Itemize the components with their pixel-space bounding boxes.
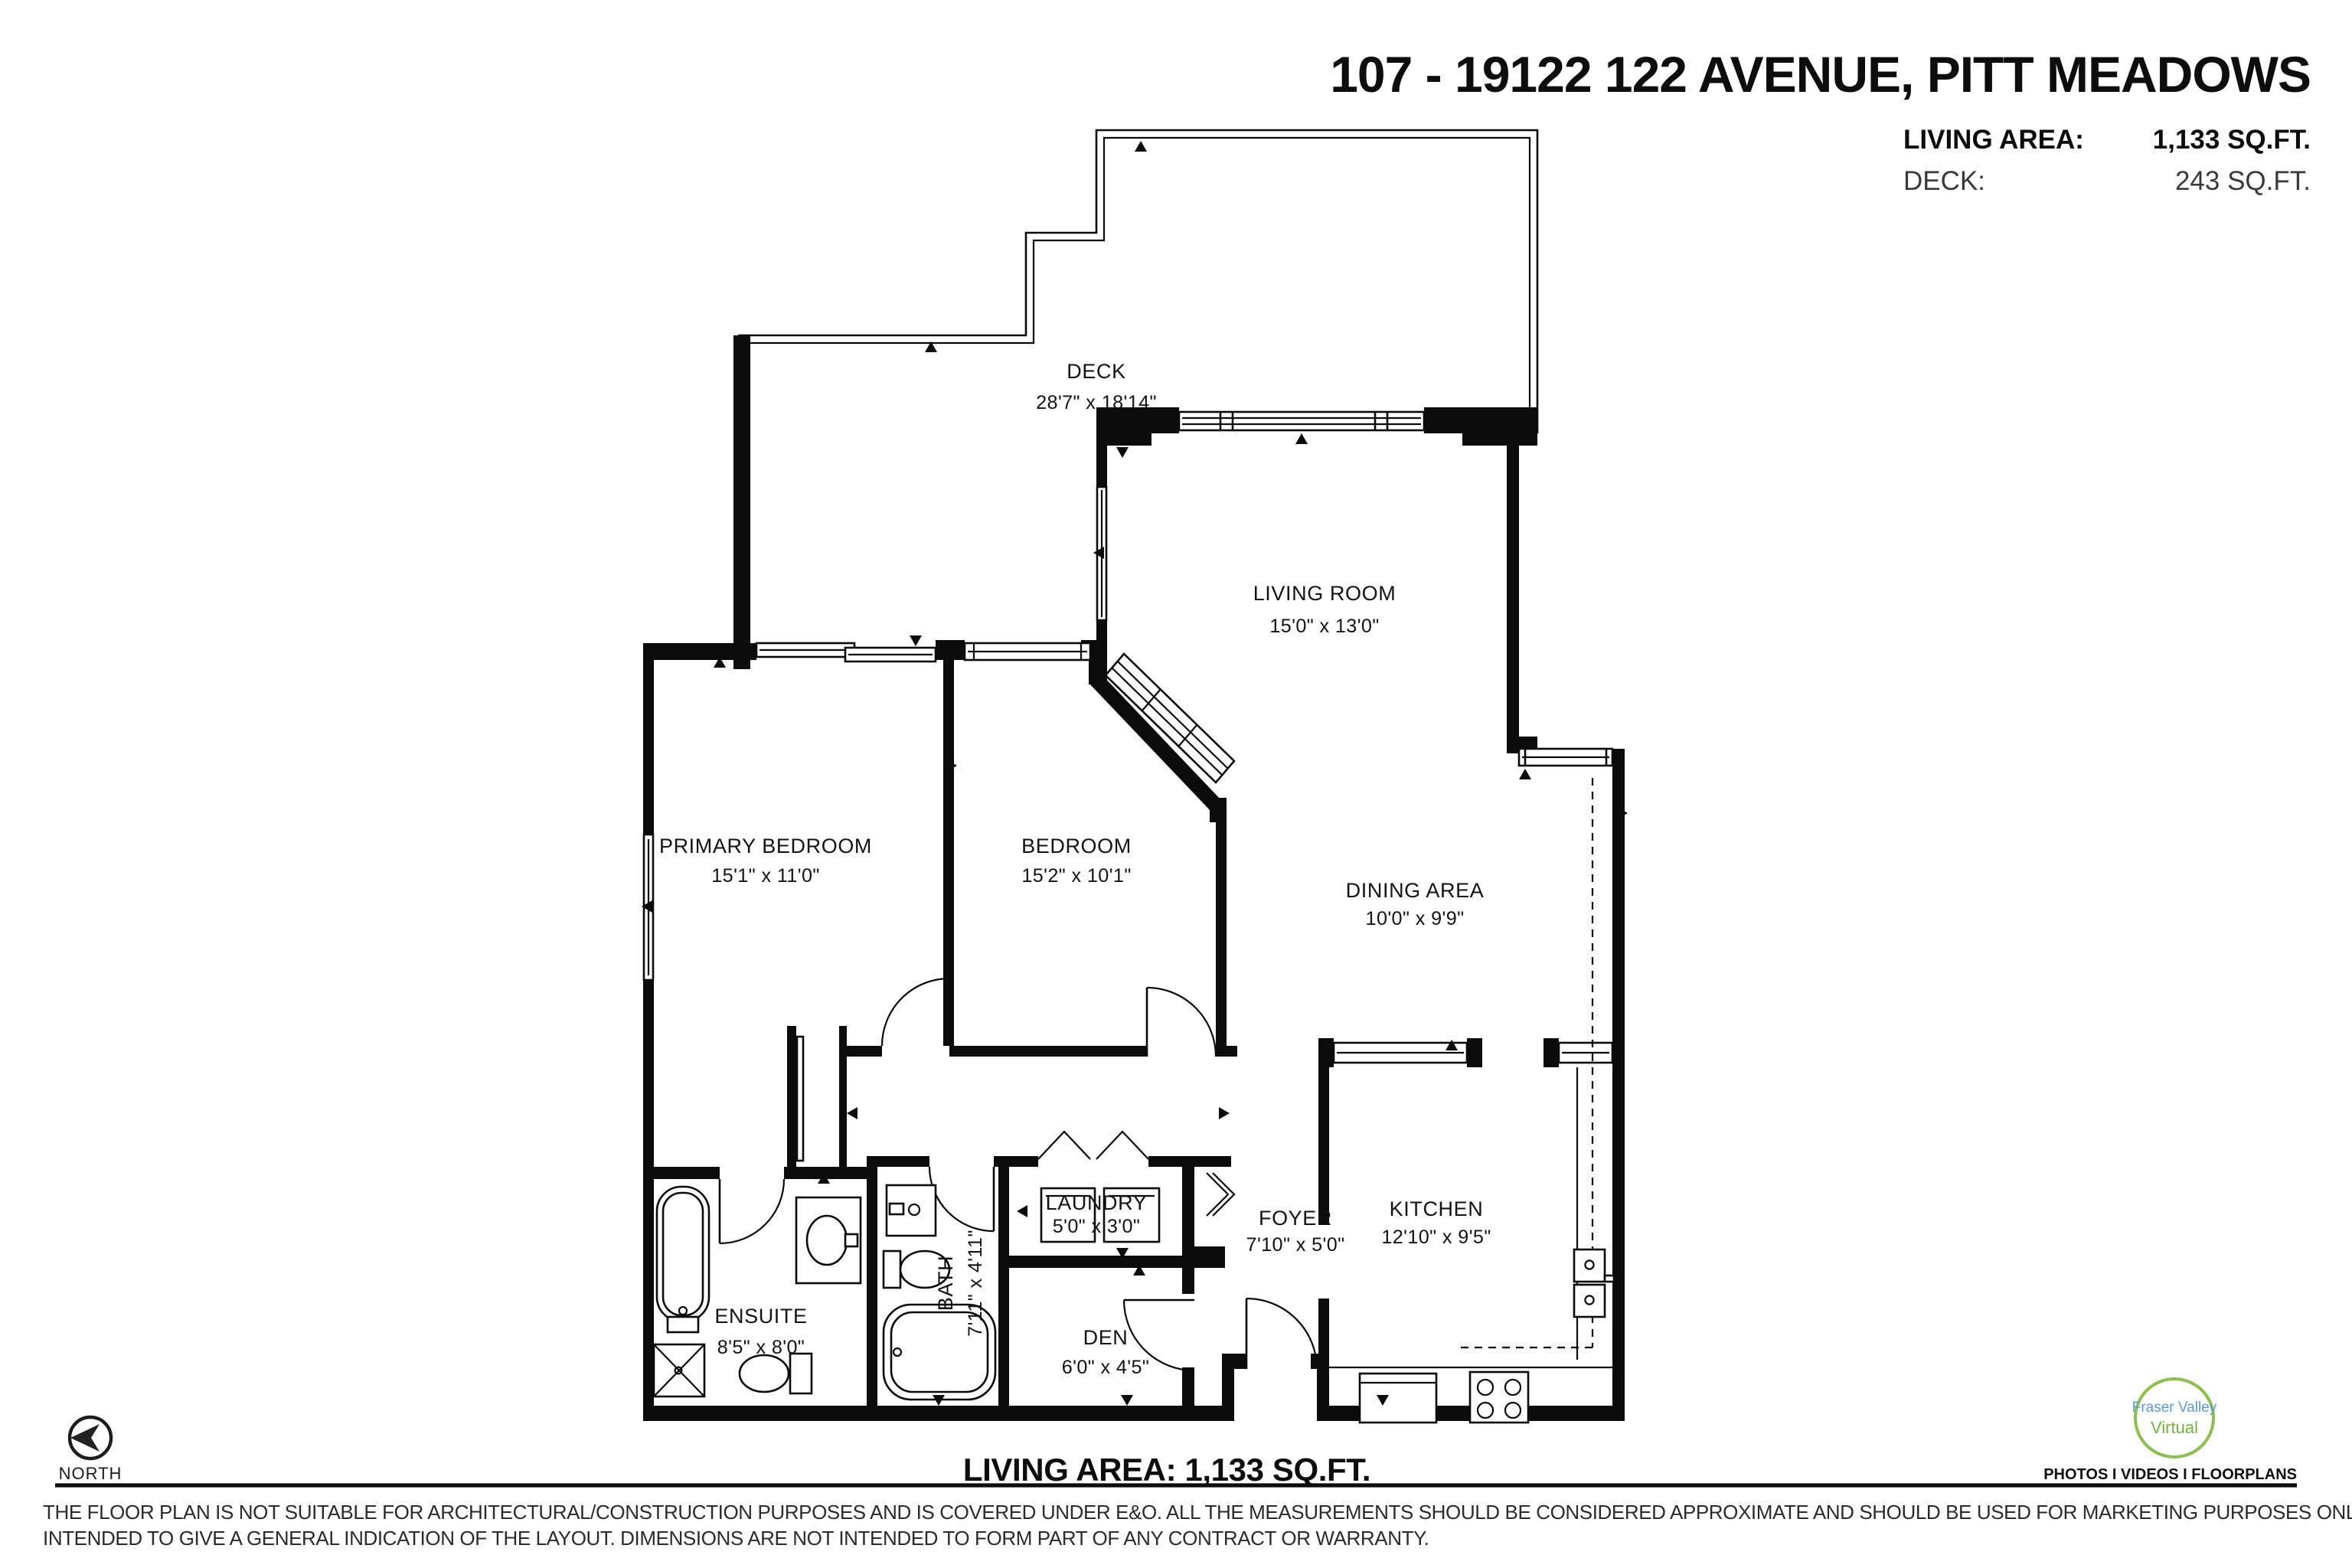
ensuite-tub — [657, 1187, 709, 1332]
room-dims-bath: 7'11" x 4'11" — [965, 1230, 986, 1337]
primary-window-1 — [756, 643, 854, 657]
fridge-icon — [1360, 1374, 1436, 1423]
room-dims-laundry: 5'0" x 3'0" — [1053, 1216, 1141, 1237]
logo-line1: Fraser Valley — [2132, 1400, 2217, 1416]
deck-outline — [738, 130, 1537, 433]
ensuite-fixtures — [654, 1187, 861, 1396]
room-label-foyer: FOYER — [1259, 1207, 1332, 1230]
bedroom-door — [1147, 988, 1216, 1057]
room-label-primary: PRIMARY BEDROOM — [659, 835, 872, 857]
fraser-valley-logo: Fraser Valley Virtual — [2132, 1379, 2217, 1457]
room-labels: DECK 28'7" x 18'14" LIVING ROOM 15'0" x … — [659, 360, 1491, 1378]
ensuite-shower — [654, 1344, 704, 1396]
ensuite-toilet — [740, 1354, 812, 1393]
room-dims-den: 6'0" x 4'5" — [1062, 1357, 1150, 1378]
room-dims-primary: 15'1" x 11'0" — [711, 865, 819, 887]
stove-icon — [1470, 1372, 1528, 1423]
floor-plan-page: 107 - 19122 122 AVENUE, PITT MEADOWS LIV… — [0, 0, 2352, 1568]
primary-closet-door — [797, 1037, 803, 1161]
room-label-laundry: LAUNDRY — [1046, 1191, 1148, 1214]
kitchen-sink — [1574, 1249, 1614, 1317]
room-dims-ensuite: 8'5" x 8'0" — [717, 1337, 805, 1358]
room-label-dining: DINING AREA — [1346, 879, 1485, 902]
floor-plan-drawing: DECK 28'7" x 18'14" LIVING ROOM 15'0" x … — [0, 0, 2352, 1568]
room-label-bath: BATH — [934, 1256, 957, 1311]
room-dims-living: 15'0" x 13'0" — [1269, 616, 1379, 637]
services-line: PHOTOS I VIDEOS I FLOORPLANS — [2043, 1466, 2297, 1483]
ensuite-door — [720, 1179, 784, 1243]
primary-window-2 — [845, 648, 936, 661]
kitchen-fixtures — [1329, 778, 1614, 1423]
logo-line2: Virtual — [2151, 1418, 2198, 1437]
room-dims-foyer: 7'10" x 5'0" — [1246, 1234, 1345, 1256]
room-dims-deck: 28'7" x 18'14" — [1036, 392, 1157, 413]
room-label-bedroom: BEDROOM — [1021, 835, 1132, 857]
ensuite-vanity — [796, 1197, 861, 1283]
disclaimer-line-2: INTENDED TO GIVE A GENERAL INDICATION OF… — [43, 1527, 2324, 1550]
room-label-kitchen: KITCHEN — [1390, 1197, 1484, 1220]
room-dims-kitchen: 12'10" x 9'5" — [1381, 1227, 1491, 1248]
bedroom-window — [965, 643, 1090, 660]
living-area-total: LIVING AREA: 1,133 SQ.FT. — [963, 1452, 1370, 1488]
dining-window — [1519, 749, 1612, 766]
disclaimer-line-1: THE FLOOR PLAN IS NOT SUITABLE FOR ARCHI… — [43, 1501, 2324, 1524]
bath-vanity — [887, 1185, 936, 1236]
room-dims-bedroom: 15'2" x 10'1" — [1021, 865, 1131, 887]
room-dims-dining: 10'0" x 9'9" — [1366, 908, 1465, 929]
room-label-ensuite: ENSUITE — [714, 1305, 807, 1328]
north-indicator: NORTH — [59, 1417, 122, 1483]
primary-bedroom-door — [882, 978, 949, 1046]
room-label-deck: DECK — [1067, 360, 1125, 383]
foyer-closet-bifold — [1207, 1173, 1234, 1216]
bath-door — [929, 1167, 994, 1231]
living-top-window — [1179, 412, 1424, 430]
room-label-living: LIVING ROOM — [1253, 582, 1396, 605]
north-label: NORTH — [59, 1464, 122, 1483]
north-arrow-icon — [70, 1424, 100, 1452]
room-label-den: DEN — [1083, 1326, 1129, 1349]
laundry-bifold-doors — [1038, 1132, 1148, 1159]
entry-door — [1246, 1298, 1317, 1369]
